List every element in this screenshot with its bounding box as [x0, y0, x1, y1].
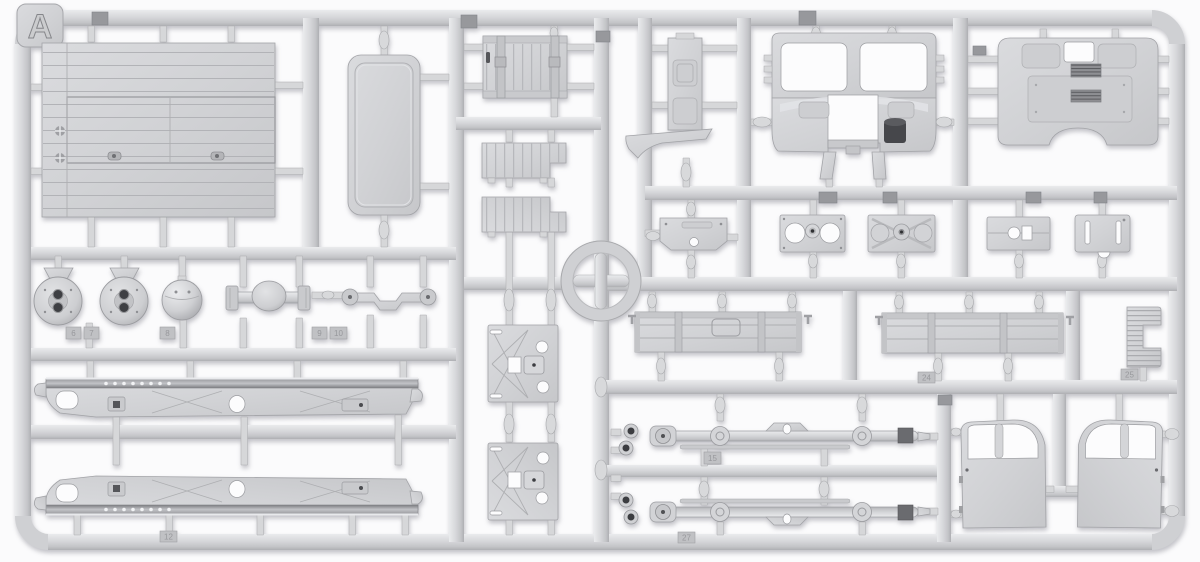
tag-27-label: 27 [682, 534, 691, 543]
bed-side-board-left [628, 312, 812, 352]
cab-floor-panel-lower [488, 443, 558, 520]
plate1-hole [690, 238, 699, 247]
board2-strap-1 [928, 313, 935, 353]
tag-25: 25 [1121, 369, 1138, 380]
board1-strap-2 [758, 312, 765, 352]
cab-leg-left [820, 152, 836, 179]
sprue-frame-a: A [15, 4, 1185, 550]
sphere-body [162, 280, 202, 320]
windshield-opening-right [860, 43, 927, 91]
cargo-bed-floor [42, 43, 275, 217]
door-hinge-tick-2 [959, 506, 963, 513]
plate2-hole-left [785, 223, 805, 243]
brake-drum-left [34, 268, 82, 325]
vertical-runner-bench [843, 291, 857, 380]
left-runner [15, 44, 31, 516]
tag-7-label: 7 [89, 329, 94, 338]
cowl-bracket [846, 146, 860, 154]
tag-10-label: 10 [334, 329, 343, 338]
tag-6: 6 [66, 327, 81, 339]
board2-cap-right [1058, 313, 1063, 353]
tailgate-handle [486, 52, 490, 63]
plate5-slot-left [1085, 221, 1090, 244]
roof-outer [348, 55, 420, 215]
rail-top-flange [46, 379, 418, 388]
rear-recess-right [1098, 44, 1136, 68]
tag-8: 8 [160, 327, 175, 339]
cab-roof-panel [348, 55, 420, 215]
plate5-body [1075, 215, 1130, 252]
bed-side-board-right [875, 313, 1074, 353]
plate2-hole-right [820, 223, 840, 243]
running-board-upper [482, 143, 566, 178]
differential-sphere [162, 276, 202, 320]
chassis-rail-upper [34, 378, 422, 418]
spring-seat-left [711, 427, 730, 446]
c-bracket-ribs [1127, 307, 1161, 367]
cab-door-right [1078, 420, 1165, 528]
board1-cap-left [635, 312, 640, 352]
hump-slot [783, 424, 791, 434]
tie-rod [680, 445, 850, 449]
board1-strap-1 [675, 312, 682, 352]
board2-cap-left [882, 313, 887, 353]
tag-15: 15 [704, 452, 721, 464]
sprue-photo: A [0, 0, 1200, 562]
vertical-runner-4 [737, 18, 751, 280]
front-axle [342, 289, 436, 310]
cab-floor-panel-upper [488, 325, 558, 402]
hub-plate-2 [780, 215, 845, 252]
rail-oval-hole [229, 396, 245, 413]
floor-panel-cutout [508, 357, 521, 373]
chassis-rail-lower [34, 476, 422, 516]
board1-cap-right [796, 312, 801, 352]
c-channel-bracket [1127, 307, 1161, 367]
vertical-runner-5 [953, 18, 968, 280]
tag-12: 12 [160, 531, 177, 542]
h-runner-2 [31, 348, 456, 361]
drum-hole-bottom [53, 303, 63, 313]
heater-cylinder-top [884, 118, 906, 126]
vertical-runner-bench2 [1066, 291, 1080, 380]
plate4-hole [1008, 227, 1020, 239]
rail-end-plate [342, 399, 368, 411]
vent-grille-lower [1071, 90, 1101, 102]
bracket-plate-1 [660, 218, 727, 250]
glovebox-indent-right [888, 102, 914, 118]
plate4-notch [1022, 226, 1032, 240]
rail-aperture-left [56, 391, 78, 409]
vertical-runner-7 [937, 394, 951, 542]
front-axle-beam [346, 293, 430, 310]
slotted-plate-5 [1075, 215, 1130, 258]
board2-strap-2 [1000, 313, 1007, 353]
vent-grille-upper [1071, 64, 1101, 77]
tag-15-label: 15 [708, 454, 717, 463]
h-runner-7 [601, 380, 1177, 394]
cab-leg-right [872, 152, 886, 179]
letter-tab: A [17, 4, 63, 47]
h-runner-4 [456, 117, 601, 130]
rear-window-opening [1064, 42, 1094, 62]
glovebox-indent-left [799, 102, 829, 118]
tag-27: 27 [678, 532, 695, 543]
board2-top-rail [882, 313, 1063, 319]
vertical-runner-0 [303, 18, 319, 256]
firewall-recess-2 [673, 98, 697, 124]
running-board-lower [482, 197, 566, 232]
hub-plate-3 [868, 215, 935, 252]
cowl-center-opening [828, 95, 878, 143]
floor-panel-slot-2 [490, 394, 502, 398]
h-runner-6 [601, 277, 1177, 291]
cab-door-left [959, 420, 1046, 528]
tailgate-buckle-right [549, 57, 560, 67]
tag-24: 24 [918, 372, 935, 383]
spring-seat-right [853, 427, 872, 446]
floor-panel-hole-1 [536, 341, 548, 353]
tag-8-label: 8 [165, 329, 170, 338]
tag-7: 7 [84, 327, 99, 339]
right-cone [918, 432, 930, 441]
tag-25-label: 25 [1125, 371, 1134, 380]
door-handle-hole [965, 468, 968, 471]
floor-panel-slot-1 [490, 330, 502, 334]
floor-panel-hole-2 [537, 381, 549, 393]
plate5-slot-right [1116, 221, 1121, 244]
h-runner-8 [604, 465, 944, 477]
tag-6-label: 6 [71, 329, 76, 338]
firewall-top-tab [676, 33, 694, 39]
leaf-spring-axle-lower [619, 493, 930, 525]
vertical-runner-1 [449, 18, 464, 542]
drum-hole-top [53, 290, 63, 300]
dark-gate-block [898, 428, 913, 443]
rear-axle-diff [252, 281, 286, 311]
mount-plate-4 [987, 217, 1050, 250]
board1-top-rail [635, 312, 801, 318]
rear-axle-flange-left [226, 286, 238, 310]
running-board-ribs [482, 143, 566, 178]
windshield-opening-left [781, 43, 847, 91]
tag-9: 9 [312, 327, 327, 339]
leaf-spring-axle-upper [619, 423, 930, 455]
firewall-panel [668, 33, 702, 130]
rail-hook-left [34, 383, 46, 397]
tailgate [483, 36, 567, 98]
tag-24-label: 24 [922, 374, 931, 383]
rail-bracket-hole [113, 401, 120, 408]
sprue-ring-marker [561, 241, 641, 321]
bed-floor-planks [43, 44, 274, 216]
plate3-boss-right [914, 224, 932, 242]
cross-bar-v [595, 253, 607, 309]
rail-hook-right [410, 389, 422, 402]
tag-12-label: 12 [164, 533, 173, 542]
tag-10: 10 [330, 327, 347, 339]
rear-axle-flange-right [298, 286, 310, 310]
cab-front-windshield-panel [764, 33, 944, 179]
rail-flange-highlight [46, 378, 418, 380]
sprue-letter: A [28, 8, 53, 46]
window-gate-post [995, 424, 1003, 458]
vertical-runner-doors [1053, 394, 1066, 494]
plate3-boss-left [871, 224, 889, 242]
plate1-slot [682, 222, 712, 228]
rear-recess-left [1022, 44, 1060, 68]
tag-9-label: 9 [317, 329, 322, 338]
tailgate-buckle-left [495, 57, 506, 67]
brake-drum-right [100, 268, 148, 325]
door-hinge-tick-1 [959, 476, 963, 483]
cab-rear-panel [998, 38, 1158, 145]
